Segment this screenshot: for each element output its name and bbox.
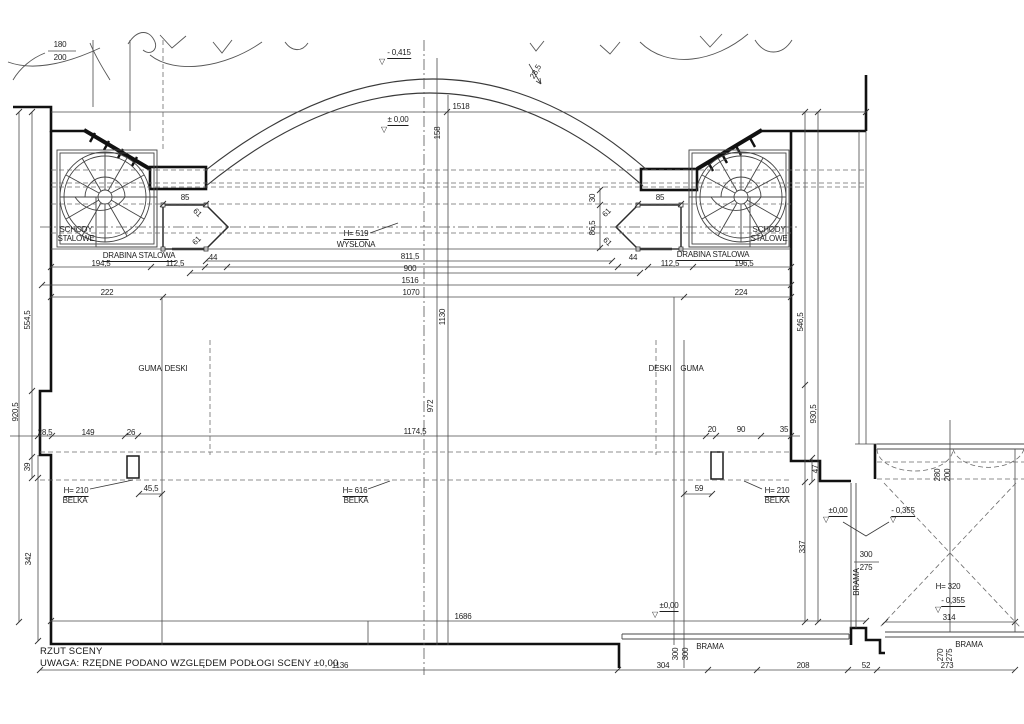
center-axis-line: [40, 40, 800, 675]
curtain-squiggles: [8, 33, 792, 81]
gate-right: [851, 444, 1024, 637]
wall-top-right: [762, 75, 866, 131]
title-block: RZUT SCENY UWAGA: RZĘDNE PODANO WZGLĘDEM…: [40, 646, 338, 669]
drawing-sheet: 180200- 0,415± 0,00151815828,5H= 519WYSŁ…: [0, 0, 1024, 724]
leader-lines: [90, 223, 889, 536]
plan-linework: [0, 0, 1024, 724]
stepped-edge-left: [84, 130, 206, 189]
door-swing-arcs: [877, 449, 1024, 471]
proscenium-arcs: [206, 64, 647, 186]
columns: [127, 452, 723, 479]
wall-right: [791, 131, 851, 481]
drawing-title: RZUT SCENY: [40, 646, 338, 657]
wall-pier-bottom-right: [851, 628, 885, 653]
wall-left-and-bottom: [40, 131, 619, 668]
drawing-note: UWAGA: RZĘDNE PODANO WZGLĘDEM PODŁOGI SC…: [40, 658, 338, 669]
stepped-edge-right: [641, 130, 762, 190]
reference-lines-dashed: [40, 40, 1024, 627]
reference-lines-solid: [10, 40, 1015, 670]
dimension-ticks: [16, 109, 1018, 673]
gate-bottom-center: [622, 634, 849, 639]
wall-top-left: [13, 107, 84, 131]
